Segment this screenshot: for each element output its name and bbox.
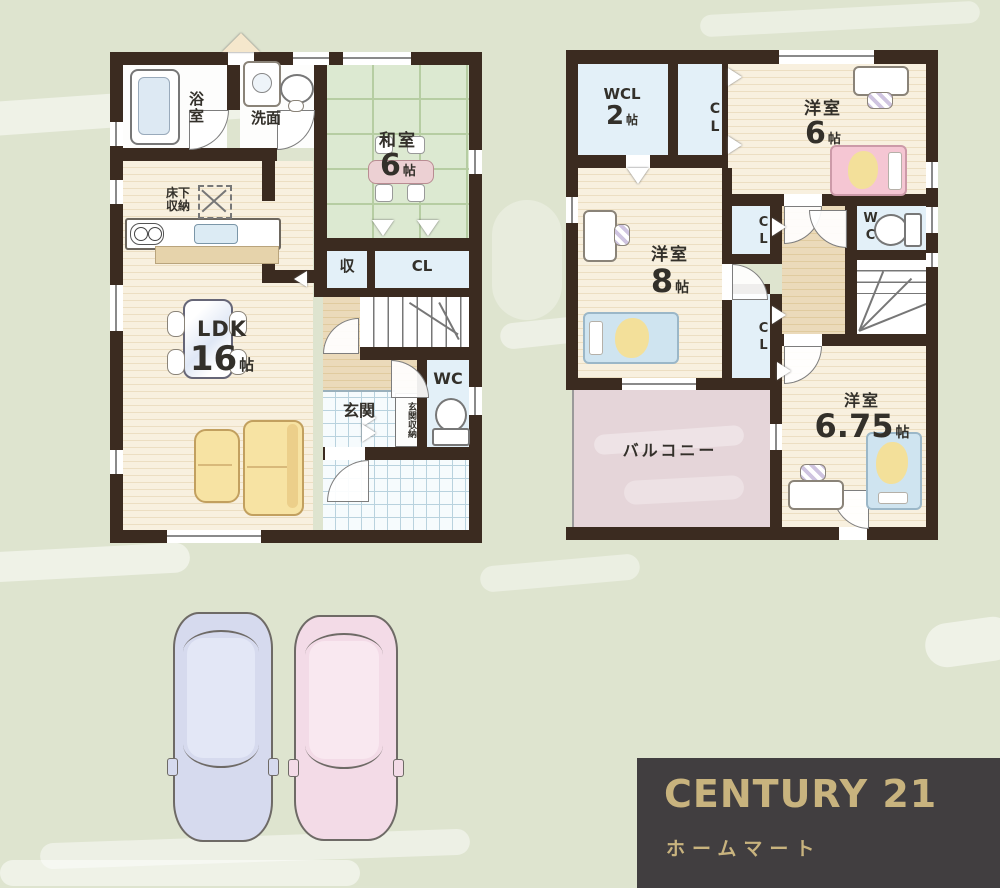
staircase-spiral [857, 260, 926, 334]
wall [668, 64, 678, 155]
room-size: 2 [606, 102, 624, 130]
washing-machine-drum [252, 73, 272, 93]
wall [770, 390, 782, 527]
balcony-label: バルコニー [604, 442, 736, 459]
storage-label: 収 [327, 258, 367, 274]
opening-icon [772, 306, 786, 324]
desk-chair [867, 92, 893, 109]
background-streak [0, 542, 191, 584]
pillow [888, 152, 902, 190]
car-blue [173, 612, 273, 842]
opening-icon [362, 424, 376, 442]
background-streak [922, 614, 1000, 670]
blanket [876, 442, 908, 484]
washroom-label: 洗面 [233, 110, 299, 126]
entrance-label: 玄関 [323, 402, 395, 419]
room-size: 6 [805, 118, 826, 150]
wall [732, 254, 782, 264]
wall [314, 288, 469, 297]
desk-chair [800, 464, 826, 481]
toilet-label: WC [859, 208, 877, 248]
car-rear-windshield [305, 633, 383, 657]
lounge-chair [194, 429, 240, 503]
sofa-backrest [287, 424, 298, 508]
room-size: 6.75 [815, 409, 894, 444]
balcony-streak [623, 475, 744, 505]
window [110, 285, 123, 331]
wall [314, 238, 469, 251]
closet-low-label: CL [732, 316, 770, 360]
wall [367, 251, 375, 288]
car-front-windshield [183, 742, 259, 768]
car-roof-glass [309, 641, 379, 759]
desk [788, 480, 844, 510]
wall [262, 161, 275, 201]
toilet-bowl [874, 214, 908, 246]
door-opening [626, 155, 650, 168]
dining-chair [167, 349, 185, 375]
room-unit: 帖 [626, 114, 638, 127]
car-front-windshield [305, 743, 383, 769]
room-unit: 帖 [895, 426, 909, 441]
stair-steps [857, 260, 926, 294]
wall [926, 50, 938, 540]
ldk-label: LDK 16帖 [188, 318, 256, 377]
entrance-storage-label: 玄関収納 [397, 396, 415, 444]
window [926, 162, 938, 188]
sliding-door-icon [728, 136, 742, 154]
sliding-door-icon [728, 68, 742, 86]
wall [110, 530, 482, 543]
window [926, 253, 938, 267]
kitchen-sink [194, 224, 238, 244]
japanese-room-label: 和室 6帖 [354, 132, 442, 183]
closet-label: CL [375, 258, 469, 274]
room-name: LDK [188, 318, 256, 341]
wall [360, 347, 469, 360]
wall [845, 260, 857, 334]
window [110, 122, 123, 146]
window [469, 150, 482, 174]
window [770, 424, 782, 450]
blanket [615, 318, 649, 358]
sliding-door-icon [417, 220, 439, 236]
door-arc [732, 264, 768, 300]
closet-mid-label: CL [732, 212, 770, 252]
desk [583, 210, 617, 262]
door-opening [325, 447, 365, 460]
room-unit: 帖 [828, 133, 841, 147]
window [167, 530, 261, 543]
stove-burner [134, 227, 148, 241]
wall [566, 527, 938, 540]
closet-top-label: CL [678, 94, 722, 144]
bed-pink [830, 145, 907, 196]
car-pink [294, 615, 398, 841]
car-roof-glass [187, 638, 255, 758]
window [926, 207, 938, 233]
window [293, 52, 329, 65]
door-opening [784, 334, 822, 346]
chair-seam [198, 464, 232, 466]
window [343, 52, 411, 65]
background-streak [700, 1, 981, 38]
century21-logo: CENTURY 21 ホームマート [637, 758, 1000, 888]
room-unit: 帖 [403, 165, 416, 179]
room-unit: 帖 [675, 281, 689, 296]
floor2-plan: WCL 2帖 CL 洋室 6帖 洋室 8帖 CL WC CL バルコニー 洋室 … [566, 50, 938, 540]
underfloor-storage-line2: 収納 [157, 200, 199, 213]
sofa-seam [247, 466, 287, 468]
car-mirror [393, 759, 404, 777]
opening-icon [294, 271, 307, 287]
car-mirror [167, 758, 178, 776]
bedroom8-label: 洋室 8帖 [638, 246, 702, 299]
kitchen-cabinet [155, 246, 279, 264]
century21-brand-text: CENTURY 21 [664, 772, 937, 816]
washing-machine [243, 61, 281, 107]
blanket [848, 151, 878, 189]
front-door [469, 387, 482, 415]
opening-icon [777, 362, 791, 380]
bathtub [130, 69, 180, 145]
wall [566, 50, 938, 64]
balcony-door [622, 378, 696, 390]
car-rear-windshield [183, 630, 259, 654]
bed-blue [583, 312, 679, 364]
vent-icon [222, 33, 260, 52]
stove-burner [148, 227, 162, 241]
room-unit: 帖 [239, 357, 254, 373]
stove [130, 223, 164, 245]
pillow [878, 492, 908, 504]
bathtub-inner [138, 77, 170, 135]
car-mirror [268, 758, 279, 776]
dining-chair [167, 311, 185, 337]
wall [314, 65, 327, 288]
room-size: 16 [190, 341, 237, 378]
toilet-tank [904, 213, 922, 247]
underfloor-storage-label: 床下 収納 [157, 187, 199, 213]
window [110, 450, 123, 474]
window [779, 50, 874, 64]
shop-name-text: ホームマート [666, 834, 821, 861]
floor-cushion [375, 184, 393, 202]
bedroom6-label: 洋室 6帖 [792, 100, 854, 151]
door-opening [722, 264, 732, 300]
floor1-plan: 浴室 洗面 和室 6帖 床下 収納 LDK 16帖 収 CL WC 玄関 玄関収… [110, 52, 482, 543]
sofa [243, 420, 304, 516]
pillow [589, 321, 603, 355]
opening-icon [772, 218, 786, 236]
wall [227, 65, 240, 110]
opening-icon [627, 168, 649, 184]
room-size: 8 [651, 264, 673, 299]
bathroom-label: 浴室 [180, 80, 204, 136]
room-name: WCL [576, 86, 668, 102]
background-streak [479, 553, 641, 593]
door-opening [839, 527, 867, 540]
walk-in-closet-label: WCL 2帖 [576, 86, 668, 130]
toilet-bowl [435, 398, 467, 432]
car-mirror [288, 759, 299, 777]
background-streak [492, 200, 562, 320]
underfloor-storage-box [198, 185, 232, 219]
wall [845, 250, 938, 260]
bedroom675-label: 洋室 6.75帖 [802, 392, 922, 444]
toilet-tank [432, 428, 470, 446]
parking-area [140, 600, 440, 870]
door-opening [784, 194, 822, 206]
sliding-door-icon [372, 220, 394, 236]
wall [469, 52, 482, 543]
room-size: 6 [380, 150, 401, 182]
wall [576, 155, 728, 168]
window [110, 180, 123, 204]
underfloor-storage-line1: 床下 [157, 187, 199, 200]
toilet-label: WC [427, 370, 469, 387]
floor-cushion [407, 184, 425, 202]
window [566, 197, 578, 223]
wall [123, 148, 277, 161]
desk-chair [614, 224, 630, 246]
